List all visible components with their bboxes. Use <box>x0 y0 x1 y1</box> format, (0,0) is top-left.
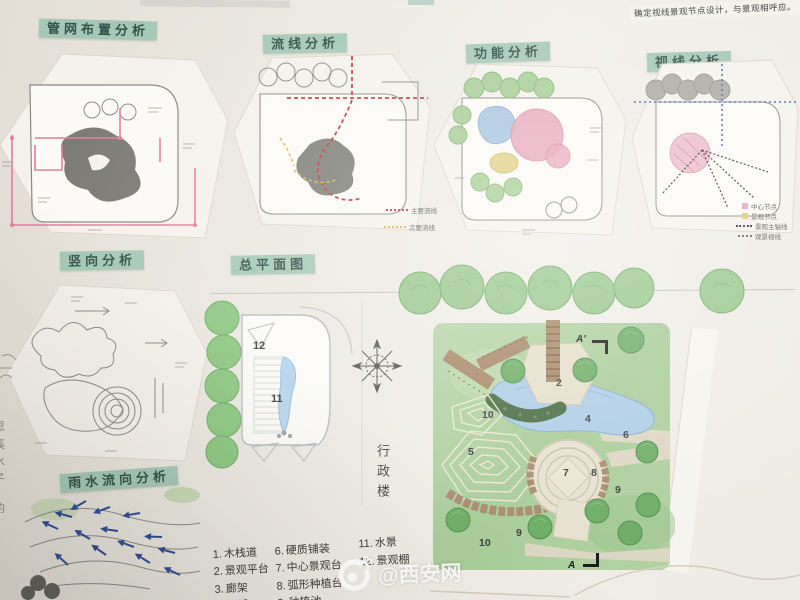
central-node-swatch <box>742 203 748 209</box>
plan-label-10a: 10 <box>482 409 494 421</box>
edge-char-3: 水 <box>0 453 5 469</box>
legend-central-node: 中心节点 <box>742 201 777 211</box>
boardwalk-top <box>546 320 560 382</box>
tree-row-left <box>205 301 241 468</box>
left-edge-sketch-remnant <box>0 352 20 386</box>
weibo-eye-icon <box>333 555 372 596</box>
vertical-analysis-sketch <box>5 283 210 468</box>
panel-title-pipe-network: 管网布置分析 <box>39 18 157 40</box>
panel-title-masterplan: 总平面图 <box>231 254 315 274</box>
plan-label-4: 4 <box>585 413 591 425</box>
legend-item-2: 2.景观平台 <box>213 560 271 579</box>
plan-label-9a: 9 <box>615 484 621 496</box>
top-edge-label-remnant <box>408 0 434 5</box>
plan-label-12: 12 <box>253 340 265 352</box>
masterplan-cad-part <box>200 295 440 510</box>
plan-label-5: 5 <box>468 446 474 458</box>
contour-sketch <box>22 508 200 592</box>
plan-label-7: 7 <box>563 467 569 479</box>
legend-main-axis: 景观主轴线 <box>736 221 788 231</box>
legend-item-1: 1.木栈道 <box>212 544 259 562</box>
watermark: @西安网 <box>333 552 462 596</box>
legend-secondary-flow: 次要流线 <box>384 222 435 232</box>
panel-title-vertical: 竖向分析 <box>60 250 144 270</box>
photo-of-landscape-design-board: 确定视线景观节点设计，与景观相呼应。 管网布置分析 流线分析 <box>0 0 800 600</box>
plan-label-2: 2 <box>556 377 562 389</box>
legend-main-axis-label: 景观主轴线 <box>755 221 788 231</box>
plan-label-6: 6 <box>623 429 629 441</box>
pipe-network-sketch <box>0 50 230 245</box>
view-line-swatch <box>738 235 752 237</box>
legend-item-11: 11.水景 <box>358 533 399 551</box>
legend-item-4: 4.旱溪 <box>215 596 251 600</box>
panel-title-circulation: 流线分析 <box>263 33 347 53</box>
design-note: 确定视线景观节点设计，与景观相呼应。 <box>629 0 800 22</box>
green-tint-patch-2 <box>164 487 200 503</box>
legend-central-node-label: 中心节点 <box>751 201 777 211</box>
blue-function-zone <box>478 106 516 143</box>
edge-char-4: 子 <box>0 470 5 486</box>
legend-item-9: 9.种植池 <box>277 592 324 600</box>
main-flow-swatch <box>386 209 408 211</box>
function-analysis-sketch <box>432 60 627 240</box>
legend-view-line-label: 观景视线 <box>755 231 781 241</box>
edge-char-5: 的 <box>0 500 5 516</box>
legend-landscape-node-label: 景观节点 <box>751 211 777 221</box>
plan-label-8: 8 <box>591 467 597 479</box>
legend-item-3: 3.廊架 <box>214 579 250 597</box>
compass-rose <box>350 334 404 394</box>
main-axis-swatch <box>736 225 752 227</box>
pink-function-zone-small <box>546 144 570 168</box>
watermark-handle: @西安网 <box>377 557 461 590</box>
faint-site-lines <box>430 553 800 600</box>
section-mark-a-prime: A' <box>576 334 586 345</box>
edge-char-1: 思 <box>0 418 5 434</box>
central-node-zone <box>670 133 710 173</box>
legend-view-line: 观景视线 <box>738 231 781 241</box>
edge-char-2: 溪 <box>0 436 5 452</box>
building-name: 行政楼 <box>373 444 392 504</box>
plan-label-11: 11 <box>271 393 283 405</box>
masterplan-rendered <box>430 315 675 577</box>
rainwater-flow-sketch <box>10 487 205 600</box>
legend-main-flow: 主要流线 <box>386 205 437 215</box>
legend-item-6: 6.硬质铺装 <box>274 540 332 559</box>
secondary-flow-swatch <box>384 226 406 228</box>
landscape-node-swatch <box>742 213 748 219</box>
section-bracket-a-prime <box>592 340 608 354</box>
plan-label-9b: 9 <box>516 527 522 539</box>
yellow-function-zone <box>490 153 518 173</box>
top-edge-remnant <box>140 0 290 8</box>
legend-landscape-node: 景观节点 <box>742 211 777 221</box>
plan-label-10b: 10 <box>479 537 491 549</box>
dark-tree-puffs <box>21 575 60 600</box>
